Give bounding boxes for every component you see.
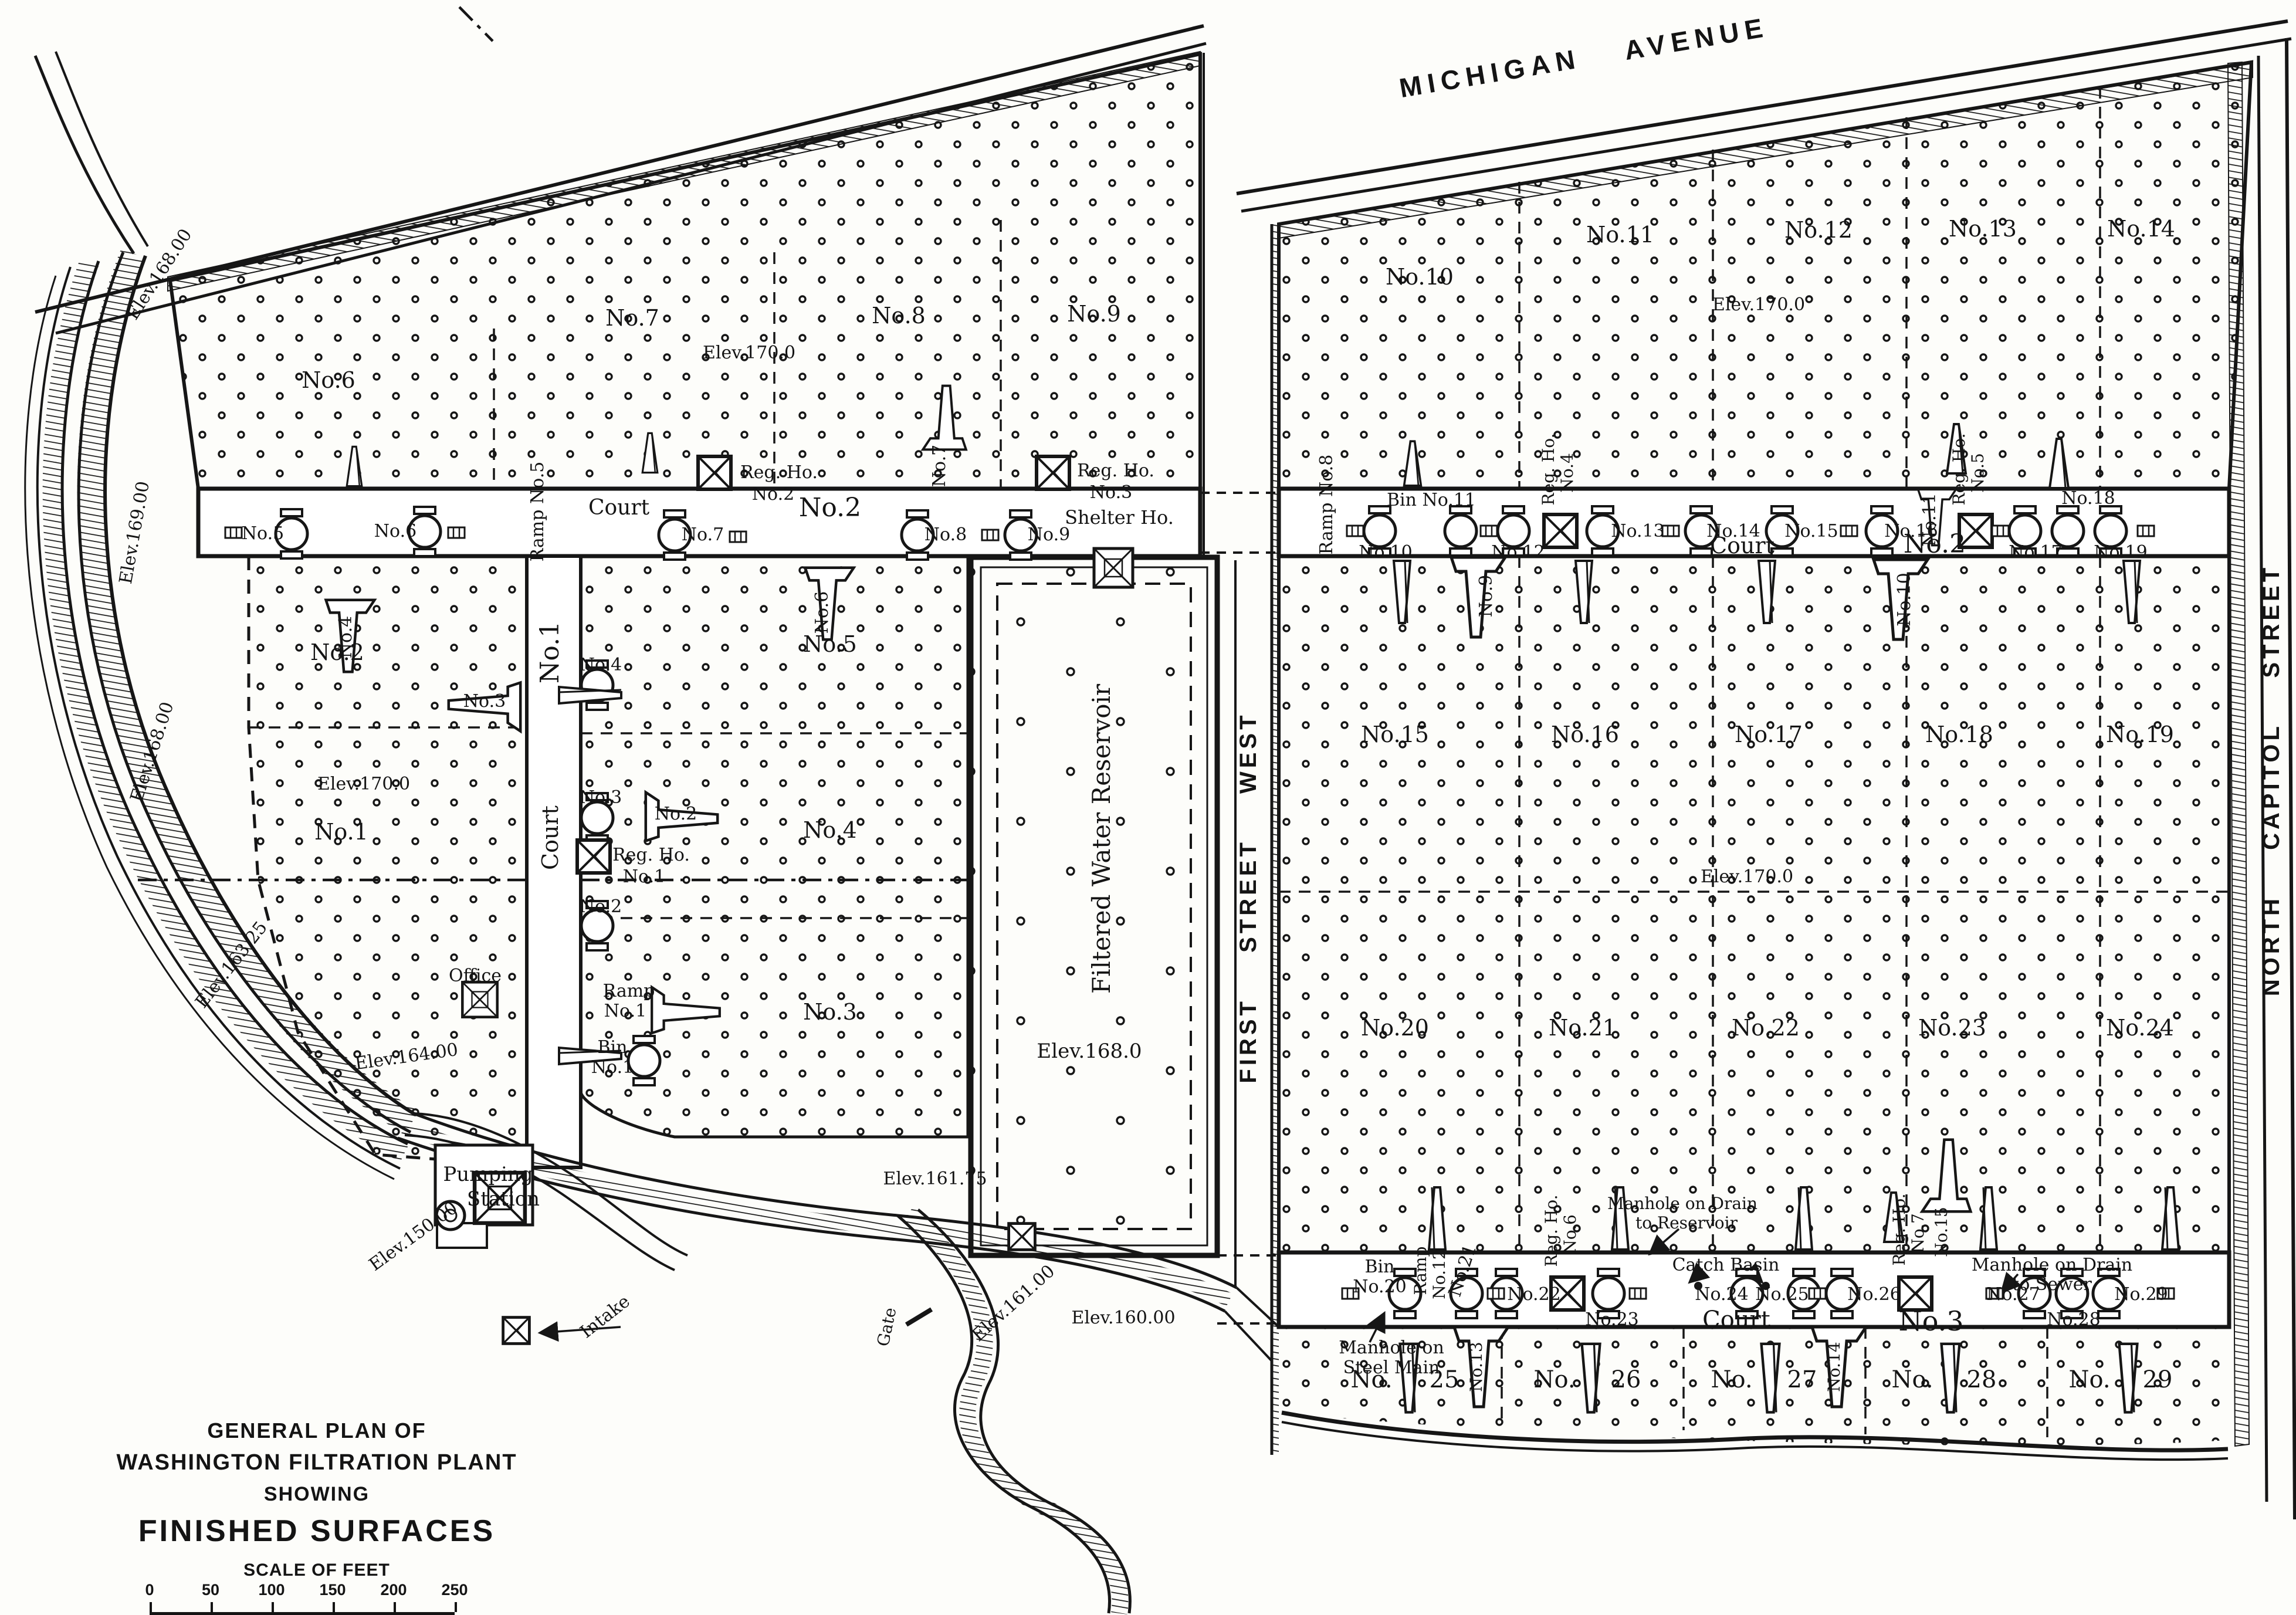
regho7-label-1: Reg. Ho.: [1891, 1193, 1908, 1265]
court-right-bottom-no: No.3: [1898, 1308, 1963, 1335]
gauge-3: [730, 531, 746, 542]
regho4-label-2: No.4: [1559, 453, 1576, 493]
regho4-label-1: Reg. Ho.: [1540, 433, 1557, 505]
bin-no7-label: No.7: [682, 526, 724, 544]
bed-no17: No.17: [1735, 723, 1803, 746]
gauge-14: [1809, 1288, 1826, 1299]
bin-no1-label-2: No.1: [591, 1059, 634, 1076]
bed-no28-b: 28: [1967, 1368, 1997, 1391]
bin-no6-label: No.6: [374, 523, 416, 540]
regho1-label-1: Reg. Ho.: [612, 847, 690, 864]
regho2-label-1: Reg. Ho.: [740, 464, 818, 482]
gauge-10: [2138, 526, 2154, 536]
bin-no14-label: No.14: [1706, 523, 1760, 540]
bed-no8: No.8: [872, 304, 926, 327]
ramp-no2-label: No.2: [655, 805, 697, 823]
pumping-label-2: Station: [467, 1189, 540, 1209]
bin-no4-label: No.4: [580, 656, 622, 674]
street-first-street-west: FIRST STREET WEST: [1237, 712, 1260, 1083]
scale-tick-label-50: 50: [202, 1581, 219, 1599]
bin-no5-label: No.5: [242, 525, 284, 543]
elev-170-0-left-top: Elev.170.0: [703, 344, 795, 362]
gauge-13: [1630, 1288, 1646, 1299]
ramp-no7-label: No.7: [931, 445, 949, 487]
title-block: GENERAL PLAN OF WASHINGTON FILTRATION PL…: [53, 1367, 581, 1613]
sand-bin-11: [1445, 506, 1477, 556]
reservoir-label: Filtered Water Reservoir: [1089, 684, 1114, 994]
regho6-label-1: Reg. Ho.: [1543, 1194, 1560, 1267]
bed-no6: No.6: [302, 369, 355, 391]
bed-no24: No.24: [2106, 1017, 2174, 1039]
bed-no29-b: 29: [2143, 1368, 2173, 1391]
reservoir-gatehouse: [1009, 1224, 1035, 1250]
bed-no22: No.22: [1732, 1017, 1800, 1039]
office-building: [462, 982, 497, 1017]
manhole-reservoir-2: to Reservoir: [1635, 1215, 1738, 1231]
regho5-label-2: No.5: [1970, 453, 1986, 493]
elev-170-0-left-mid: Elev.170.0: [317, 776, 410, 793]
bin-no23-label: No.23: [1585, 1311, 1639, 1329]
scale-tick-label-100: 100: [258, 1581, 285, 1599]
bed-no7: No.7: [605, 307, 659, 329]
bed-no1: No.1: [314, 821, 368, 843]
bin-no3-label: No.3: [580, 789, 622, 807]
ramp-no15-label: No.15: [1933, 1207, 1950, 1257]
ramp-no1-label-1: Ramp: [603, 983, 655, 1000]
bin-no8-label: No.8: [925, 526, 967, 544]
regho3-label-1: Reg. Ho.: [1077, 462, 1154, 480]
ramp-no10-label: No.10: [1896, 573, 1914, 627]
court-left-vert: Court: [539, 805, 561, 870]
regulator-house-3: [1037, 456, 1069, 489]
ramp-no14-label: No.14: [1826, 1342, 1843, 1391]
ramp-no12-label-1: Ramp: [1413, 1247, 1429, 1295]
manhole-steel-1: Manhole on: [1339, 1339, 1444, 1357]
gauge-7: [1662, 526, 1679, 536]
bed-no16: No.16: [1551, 723, 1619, 746]
ramp-no1-label-2: No.1: [604, 1003, 646, 1020]
bin-no20-label-2: No.20: [1353, 1278, 1407, 1296]
scale-bar: 050100150200250: [150, 1594, 455, 1615]
intake-structure: [503, 1318, 530, 1344]
bed-no11: No.11: [1586, 224, 1654, 246]
manhole-sewer-1: Manhole on Drain: [1972, 1257, 2132, 1274]
bed-no28-a: No.: [1891, 1368, 1933, 1391]
bin-no9-label: No.9: [1028, 526, 1070, 544]
shelter-house: [1094, 549, 1133, 587]
court-left-horiz: Court: [588, 497, 649, 519]
title-line-3: SHOWING: [53, 1483, 581, 1506]
ramp-no4-label: No.4: [337, 616, 355, 658]
scale-tick-label-250: 250: [441, 1581, 468, 1599]
bed-no4: No.4: [803, 819, 857, 841]
gauge-4: [982, 530, 998, 540]
bin-no19-label: No.19: [2094, 544, 2148, 561]
gauge-8: [1841, 526, 1857, 536]
scale-tick-label-0: 0: [145, 1581, 154, 1599]
bed-no26-b: 26: [1611, 1368, 1641, 1391]
gauge-9: [1992, 526, 2009, 536]
bed-no15: No.15: [1361, 723, 1429, 746]
office-label: Office: [449, 967, 502, 985]
bin-no12-label: No.12: [1491, 544, 1545, 561]
scale-caption: SCALE OF FEET: [53, 1560, 581, 1580]
shelter-house-label: Shelter Ho.: [1065, 508, 1174, 527]
gauge-12: [1488, 1288, 1504, 1299]
elev-160-00: Elev.160.00: [1071, 1309, 1175, 1327]
ramp-no5-label: Ramp No.5: [529, 462, 547, 562]
bin-no11-label: Bin No.11: [1387, 492, 1476, 509]
street-north-capitol: NORTH CAPITOL STREET: [2260, 564, 2283, 996]
bed-no18: No.18: [1925, 723, 1993, 746]
bin-no24-label: No.24: [1695, 1286, 1749, 1303]
bed-no27-b: 27: [1787, 1368, 1817, 1391]
bed-no9: No.9: [1067, 303, 1121, 325]
bin-no18-label: No.18: [2061, 490, 2115, 507]
bed-no3: No.3: [803, 1001, 857, 1023]
court-left-horiz-no: No.2: [799, 495, 861, 521]
manhole-reservoir-1: Manhole on Drain: [1607, 1196, 1757, 1212]
bed-no23: No.23: [1918, 1017, 1986, 1039]
regho6-label-2: No.6: [1562, 1214, 1579, 1254]
scale-tick-label-200: 200: [380, 1581, 407, 1599]
ramp-no13-label: No.13: [1468, 1342, 1485, 1391]
bed-no12: No.12: [1784, 219, 1853, 241]
bin-no29-label: No.29: [2114, 1286, 2168, 1303]
bin-no10-label: No.10: [1359, 544, 1413, 561]
ramp-no12-label-2: No.12: [1431, 1249, 1448, 1299]
bin-no20-label-1: Bin: [1365, 1258, 1395, 1276]
pumping-label-1: Pumping: [443, 1164, 533, 1184]
scale-tick-250: [455, 1602, 457, 1612]
title-line-4: FINISHED SURFACES: [53, 1514, 581, 1549]
bed-no27-a: No.: [1711, 1368, 1752, 1391]
bed-no26-a: No.: [1533, 1368, 1575, 1391]
catch-basin-label: Catch Basin: [1672, 1257, 1780, 1274]
regulator-house-1: [577, 840, 610, 873]
bed-no10: No.10: [1386, 266, 1454, 288]
ramp-no11-label: No.11: [1921, 493, 1939, 547]
elev-170-0-right-mid: Elev.170.0: [1701, 868, 1793, 886]
bin-no25-label: No.25: [1755, 1286, 1809, 1303]
scale-tick-100: [272, 1602, 274, 1612]
bin-no22-label: No.22: [1507, 1286, 1561, 1303]
bed-no14: No.14: [2107, 218, 2175, 240]
bin-no28-label: No.28: [2047, 1311, 2101, 1329]
scale-tick-150: [333, 1602, 335, 1612]
bin-no26-label: No.26: [1847, 1286, 1901, 1303]
bin-no1-label-1: Bin: [598, 1039, 628, 1057]
bin-no27-label: No.27: [1986, 1286, 2040, 1303]
bed-no20: No.20: [1361, 1017, 1429, 1039]
court-left-vert-no: No.1: [537, 621, 563, 683]
scale-tick-200: [394, 1602, 396, 1612]
bin-no13-label: No.13: [1611, 523, 1665, 540]
ramp-no8-label: Ramp No.8: [1318, 455, 1336, 555]
ramp-no9-label: No.9: [1478, 575, 1495, 617]
bed-no13: No.13: [1949, 218, 2017, 240]
regho7-label-2: No.7: [1910, 1213, 1926, 1253]
regulator-house-2: [698, 456, 731, 489]
scale-tick-50: [211, 1602, 213, 1612]
bed-no19: No.19: [2106, 723, 2174, 746]
scale-tick-label-150: 150: [319, 1581, 346, 1599]
scale-tick-0: [150, 1602, 152, 1612]
title-line-2: WASHINGTON FILTRATION PLANT: [53, 1450, 581, 1475]
elev-168-0-reservoir: Elev.168.0: [1037, 1041, 1142, 1061]
title-line-1: GENERAL PLAN OF: [53, 1418, 581, 1443]
gauge-5: [1347, 526, 1363, 536]
bin-no17-label: No.17: [2009, 544, 2063, 561]
elev-161-75: Elev.161.75: [883, 1170, 987, 1188]
manhole-steel-2: Steel Main: [1343, 1359, 1440, 1377]
plan-canvas: MICHIGAN AVENUEFIRST STREET WESTNORTH CA…: [0, 0, 2296, 1615]
court-right-bottom: Court: [1702, 1308, 1770, 1332]
regho2-label-2: No.2: [752, 486, 794, 503]
ramp-no3-label: No.3: [463, 693, 506, 710]
regho5-label-1: Reg. Ho.: [1951, 433, 1967, 505]
bed-no29-a: No.: [2068, 1368, 2110, 1391]
regho1-label-2: No.1: [623, 868, 665, 886]
gauge-2: [448, 527, 465, 538]
regulator-house-4: [1544, 514, 1577, 547]
bed-no5: No.5: [803, 633, 857, 655]
elev-170-0-right-top: Elev.170.0: [1712, 296, 1805, 314]
bed-no21: No.21: [1549, 1017, 1617, 1039]
bin-no2-label: No.2: [580, 898, 622, 916]
gauge-1: [225, 527, 242, 538]
bin-no15-label: No.15: [1784, 523, 1838, 540]
regho3-label-2: No.3: [1090, 484, 1132, 502]
gauge-6: [1481, 526, 1497, 536]
ramp-no6-label: No.6: [814, 591, 831, 634]
